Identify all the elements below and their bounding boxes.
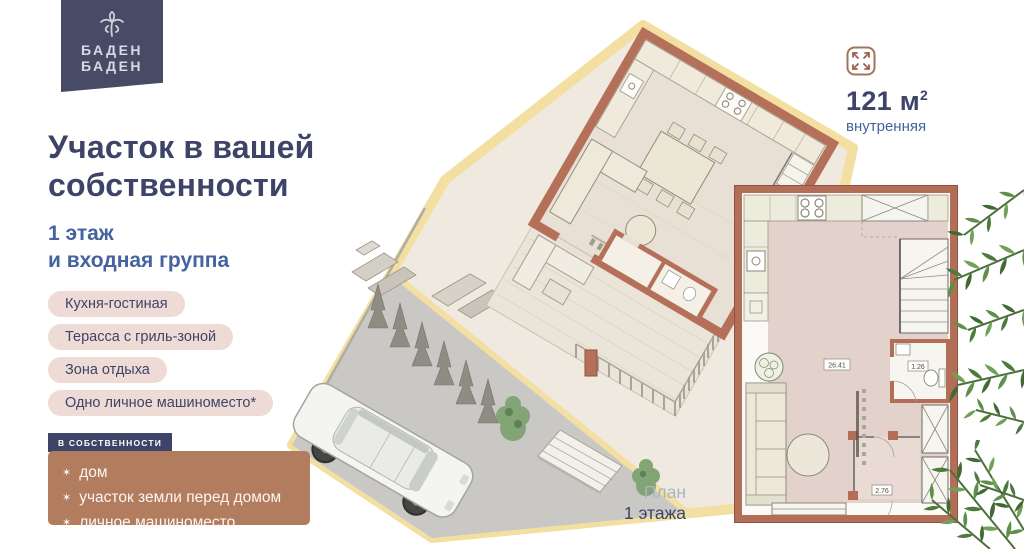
hall-area-label: 2.76: [875, 488, 889, 495]
page-title: Участок в вашей собственности: [48, 128, 315, 204]
floor-plan: 26.41 1.26 2.76: [742, 193, 950, 515]
plant-branch-icon: [920, 440, 1024, 549]
brand-name: БАДЕН БАДЕН: [81, 42, 143, 74]
feature-pill: Кухня-гостиная: [48, 291, 185, 317]
page-subtitle: 1 этаж и входная группа: [48, 220, 229, 274]
area-block: 121 м2 внутренняя: [846, 46, 928, 135]
chimney: [585, 350, 597, 376]
ownership-item: ✶личное машиноместо: [62, 511, 296, 536]
palm-tree-icon: [97, 10, 127, 40]
ownership-tag: В СОБСТВЕННОСТИ: [48, 433, 172, 452]
ownership-item: ✶дом: [62, 461, 296, 486]
feature-pill: Зона отдыха: [48, 357, 167, 383]
star-bullet-icon: ✶: [62, 492, 71, 504]
feature-pill: Терасса с гриль-зоной: [48, 324, 233, 350]
feature-pill: Одно личное машиноместо*: [48, 390, 273, 416]
plan-caption: План 1 этажа: [540, 482, 686, 524]
area-caption: внутренняя: [846, 118, 928, 135]
slide: БАДЕН БАДЕН Участок в вашей собственност…: [0, 0, 1024, 549]
ownership-box: ✶дом ✶участок земли перед домом ✶личное …: [48, 451, 310, 525]
feature-list: Кухня-гостиная Терасса с гриль-зоной Зон…: [48, 291, 273, 423]
ownership-item: ✶участок земли перед домом: [62, 486, 296, 511]
plant-branch-icon: [946, 160, 1024, 440]
living-area-label: 26.41: [828, 363, 846, 370]
expand-arrows-icon: [846, 46, 876, 76]
area-value: 121 м2: [846, 86, 928, 117]
brand-logo: БАДЕН БАДЕН: [61, 0, 163, 92]
star-bullet-icon: ✶: [62, 517, 71, 529]
star-bullet-icon: ✶: [62, 467, 71, 479]
wc-area-label: 1.26: [911, 364, 925, 371]
